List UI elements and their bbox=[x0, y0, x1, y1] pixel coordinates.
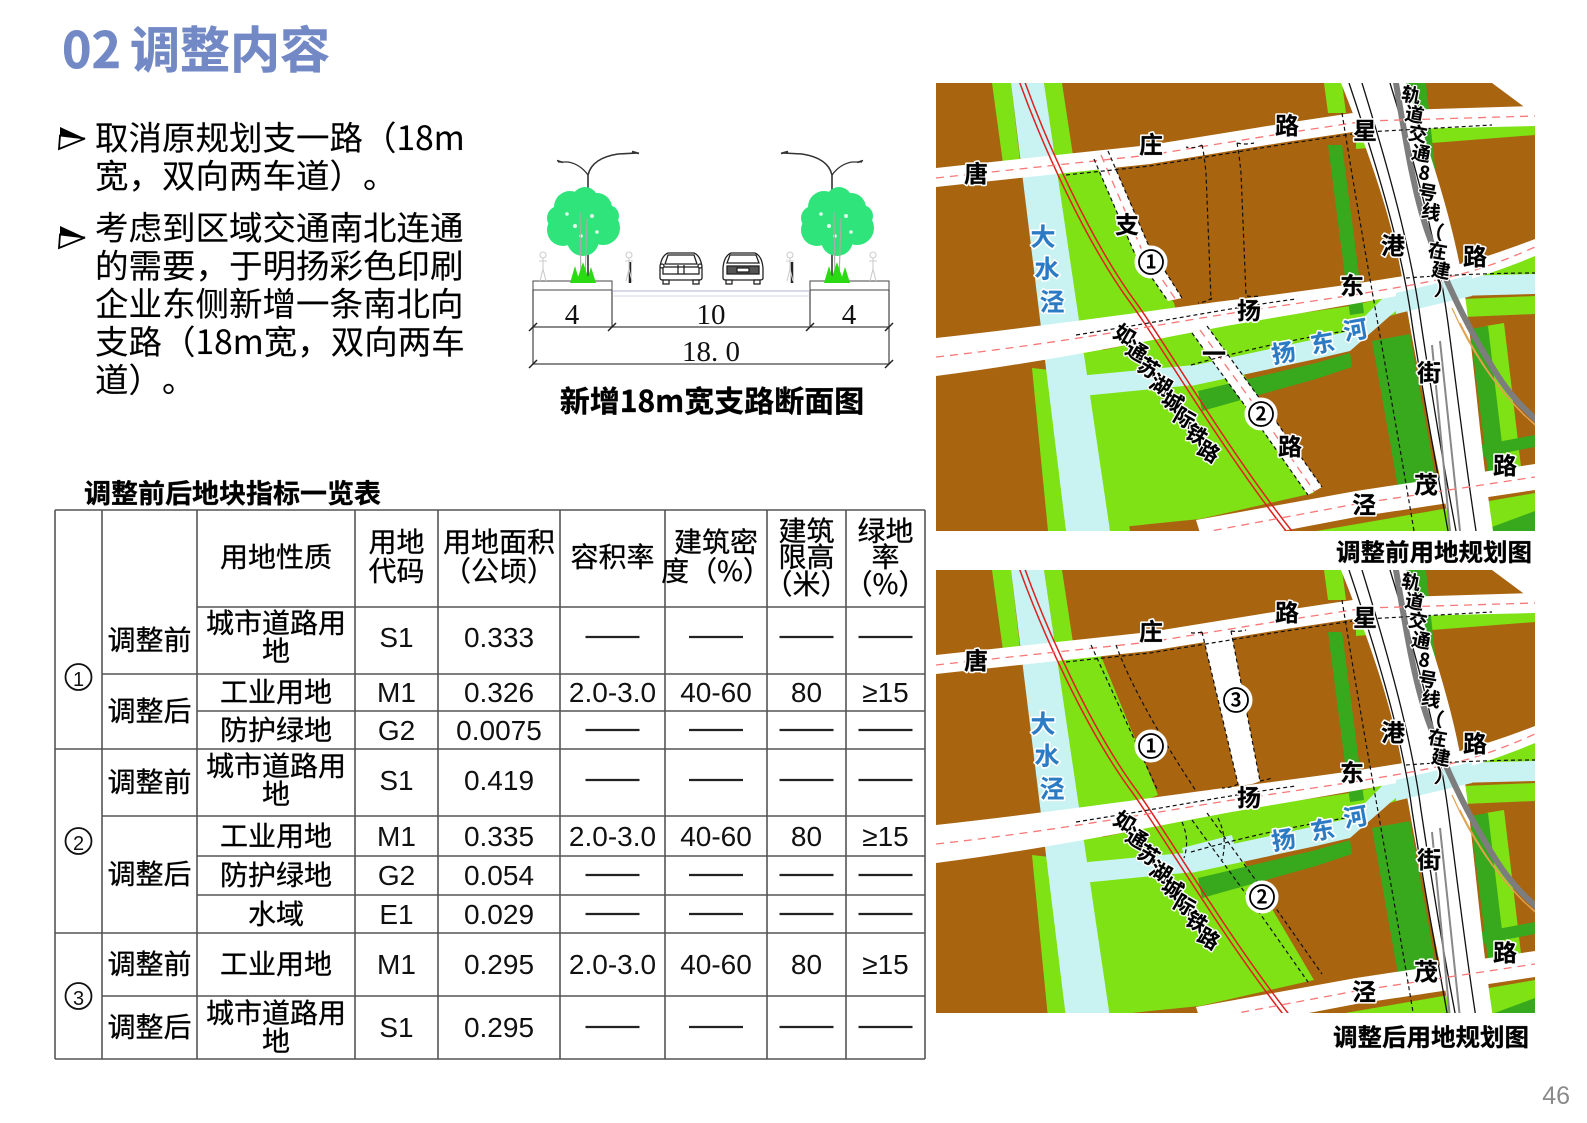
svg-text:40-60: 40-60 bbox=[680, 677, 752, 708]
svg-text:S1: S1 bbox=[379, 1012, 413, 1043]
svg-text:80: 80 bbox=[791, 949, 822, 980]
svg-text:E1: E1 bbox=[379, 899, 413, 930]
svg-text:2.0-3.0: 2.0-3.0 bbox=[569, 949, 656, 980]
svg-text:10: 10 bbox=[697, 299, 726, 331]
svg-text:M1: M1 bbox=[377, 949, 416, 980]
svg-text:M1: M1 bbox=[377, 677, 416, 708]
svg-text:46: 46 bbox=[1542, 1082, 1570, 1110]
svg-text:G2: G2 bbox=[378, 715, 415, 746]
svg-text:4: 4 bbox=[565, 299, 580, 331]
svg-text:0.295: 0.295 bbox=[464, 1012, 534, 1043]
svg-text:≥15: ≥15 bbox=[862, 677, 909, 708]
svg-text:G2: G2 bbox=[378, 860, 415, 891]
svg-text:0.029: 0.029 bbox=[464, 899, 534, 930]
svg-text:≥15: ≥15 bbox=[862, 821, 909, 852]
svg-text:2.0-3.0: 2.0-3.0 bbox=[569, 677, 656, 708]
svg-text:0.295: 0.295 bbox=[464, 949, 534, 980]
svg-text:≥15: ≥15 bbox=[862, 949, 909, 980]
svg-text:18. 0: 18. 0 bbox=[682, 336, 740, 368]
svg-text:0.333: 0.333 bbox=[464, 622, 534, 653]
svg-text:2.0-3.0: 2.0-3.0 bbox=[569, 821, 656, 852]
svg-text:0.326: 0.326 bbox=[464, 677, 534, 708]
svg-text:1: 1 bbox=[73, 669, 84, 691]
svg-text:S1: S1 bbox=[379, 765, 413, 796]
svg-text:0.419: 0.419 bbox=[464, 765, 534, 796]
svg-text:0.054: 0.054 bbox=[464, 860, 534, 891]
svg-text:40-60: 40-60 bbox=[680, 949, 752, 980]
svg-text:2: 2 bbox=[73, 833, 84, 855]
svg-text:M1: M1 bbox=[377, 821, 416, 852]
svg-text:S1: S1 bbox=[379, 622, 413, 653]
svg-text:40-60: 40-60 bbox=[680, 821, 752, 852]
svg-text:80: 80 bbox=[791, 677, 822, 708]
svg-text:3: 3 bbox=[73, 988, 84, 1010]
svg-text:4: 4 bbox=[842, 299, 857, 331]
svg-text:80: 80 bbox=[791, 821, 822, 852]
svg-text:0.335: 0.335 bbox=[464, 821, 534, 852]
svg-text:0.0075: 0.0075 bbox=[456, 715, 542, 746]
